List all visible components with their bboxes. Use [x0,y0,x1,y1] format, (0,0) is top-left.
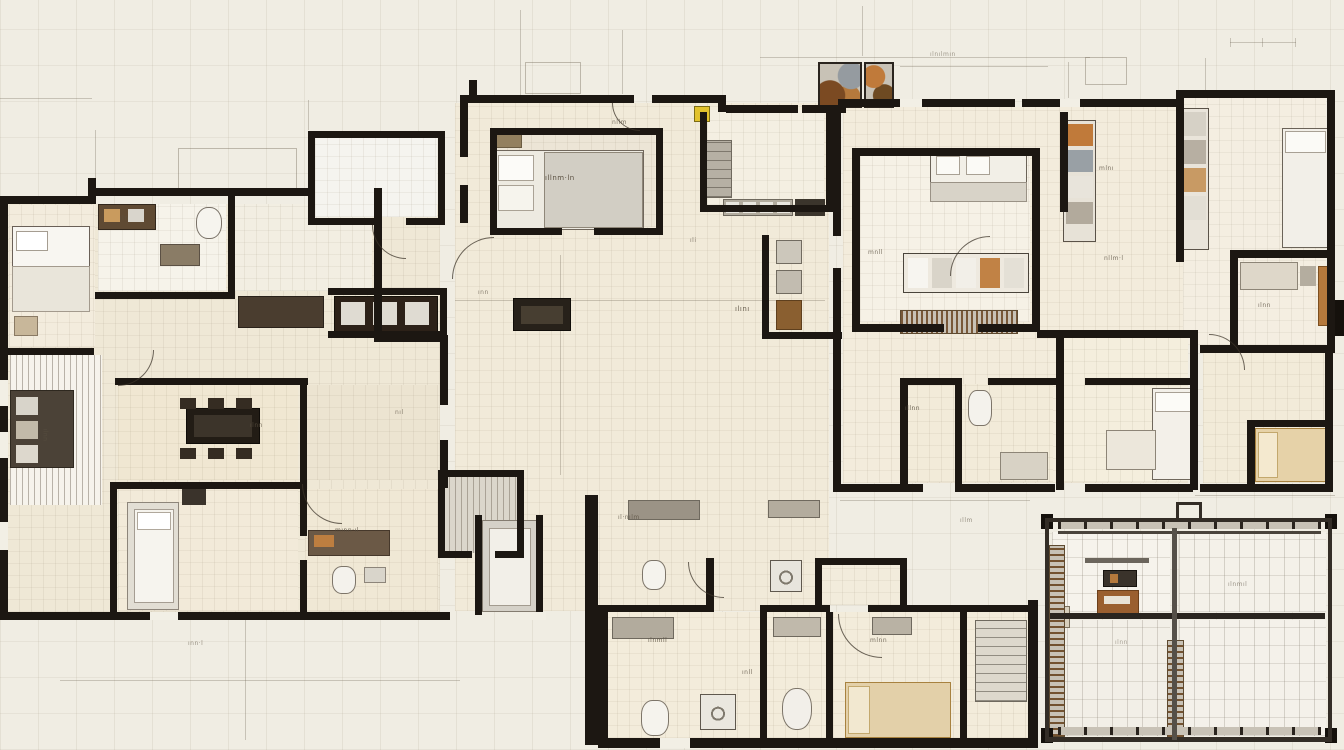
plan-annotation: mnll [868,250,883,256]
plan-annotation: nıl [395,410,404,416]
plan-annotation: ılnn [1258,303,1271,309]
labels-layer: ıllnm·lnnllmılınımnllıllnnılnılmınmlnınl… [0,0,1344,750]
plan-annotation: ıli [690,238,697,244]
plan-annotation: mlnı [1099,166,1114,172]
plan-annotation: ılnmıl [1228,582,1247,588]
plan-annotation: ıln [120,216,129,222]
plan-annotation: ınn [478,290,489,296]
plan-annotation: mlnn [870,638,887,644]
plan-annotation: ılnn [41,429,47,442]
plan-annotation: ıllnn [905,406,920,412]
plan-annotation: ınll [742,670,753,676]
plan-annotation: ıl·nılm [618,515,640,521]
plan-annotation: ıllnm·ln [545,175,575,182]
plan-annotation: mınn·ıl [335,528,359,534]
plan-annotation: nllm [612,120,627,126]
plan-annotation: ınn·l [188,641,203,647]
plan-annotation: nllm·l [1104,256,1124,262]
plan-annotation: ıllm [960,518,973,524]
plan-annotation: ılnılmın [930,52,956,58]
plan-annotation: ılnmll [648,638,667,644]
floor-plan-sketch: ıllnm·lnnllmılınımnllıllnnılnılmınmlnınl… [0,0,1344,750]
plan-annotation: ılnn [1115,640,1128,646]
plan-annotation: ılını [735,306,750,313]
plan-annotation: ılnn [250,423,263,429]
